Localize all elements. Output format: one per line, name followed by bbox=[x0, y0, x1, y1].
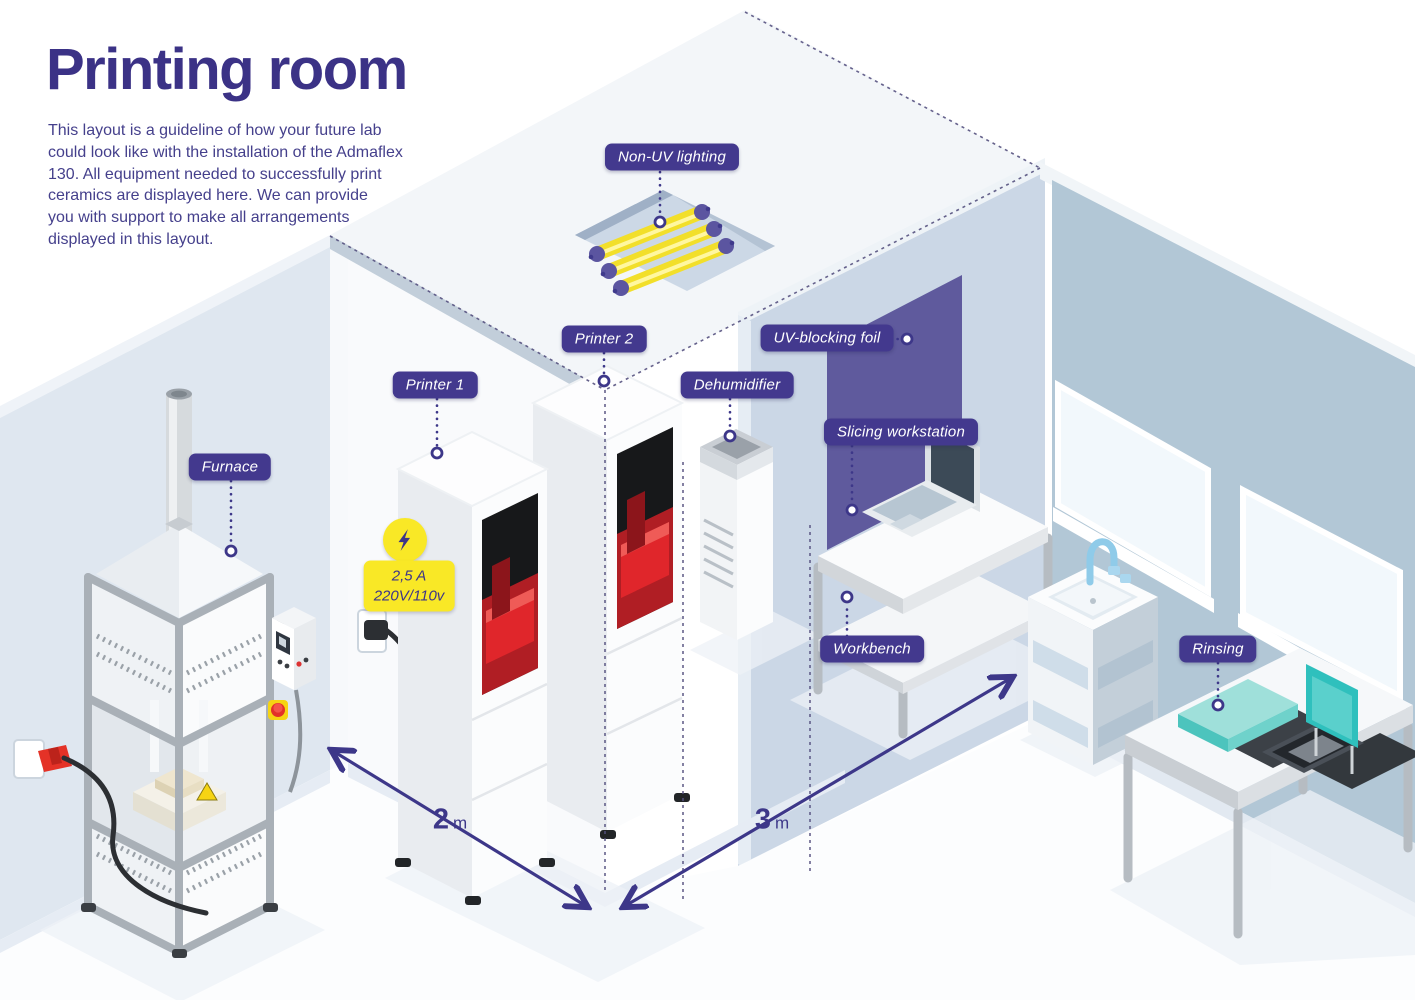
label-uv-blocking-foil: UV-blocking foil bbox=[761, 325, 894, 352]
label-slicing-workstation: Slicing workstation bbox=[824, 419, 978, 446]
power-amperage: 2,5 A bbox=[374, 567, 445, 587]
label-workbench: Workbench bbox=[820, 636, 924, 663]
label-dehumidifier: Dehumidifier bbox=[681, 372, 794, 399]
page-description: This layout is a guideline of how your f… bbox=[48, 120, 468, 251]
printing-room-infographic: Printing room This layout is a guideline… bbox=[0, 0, 1415, 1000]
page-title: Printing room bbox=[46, 36, 407, 103]
dimension-label-2m: 2m bbox=[433, 804, 467, 837]
label-non-uv-lighting: Non-UV lighting bbox=[605, 144, 739, 171]
lightning-bolt-icon bbox=[392, 527, 418, 553]
dimension-2m-unit: m bbox=[453, 814, 467, 833]
left-wall-inner-edge bbox=[330, 235, 348, 770]
dimension-3m-value: 3 bbox=[755, 804, 771, 836]
power-spec-badge: 2,5 A 220V/110v bbox=[364, 561, 455, 612]
printer-1 bbox=[395, 432, 555, 905]
power-indicator bbox=[383, 518, 427, 562]
printer-2 bbox=[530, 366, 690, 839]
dimension-3m-unit: m bbox=[775, 814, 789, 833]
dimension-2m-value: 2 bbox=[433, 804, 449, 836]
label-printer-2: Printer 2 bbox=[562, 326, 647, 353]
label-furnace: Furnace bbox=[189, 454, 271, 481]
label-rinsing: Rinsing bbox=[1179, 636, 1256, 663]
label-printer-1: Printer 1 bbox=[393, 372, 478, 399]
dehumidifier bbox=[700, 429, 773, 640]
dimension-label-3m: 3m bbox=[755, 804, 789, 837]
power-voltage: 220V/110v bbox=[374, 586, 445, 606]
